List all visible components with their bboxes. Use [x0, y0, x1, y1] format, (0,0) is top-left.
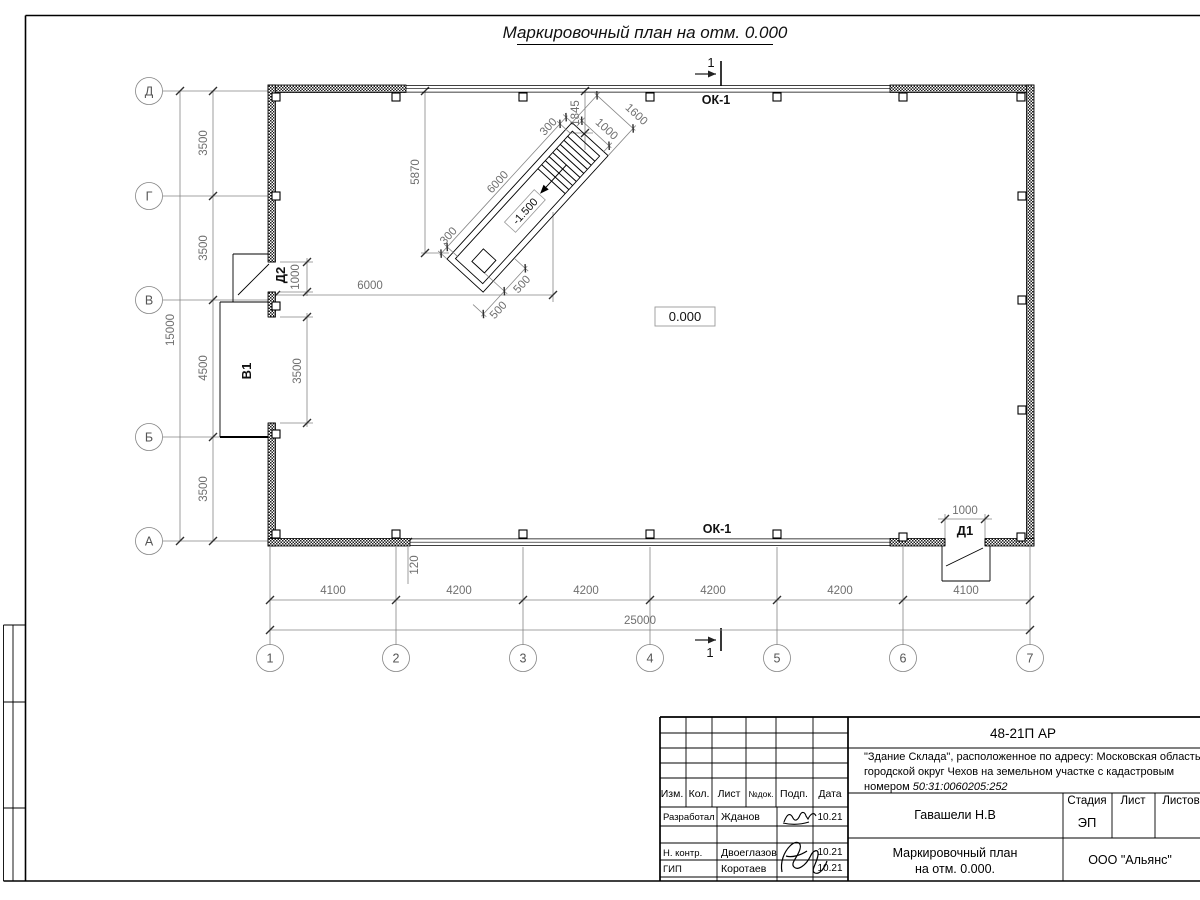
door-d2-porch: [233, 254, 269, 302]
plan-title: Маркировочный план на отм. 0.000: [503, 23, 788, 42]
axis-label: 4: [647, 652, 654, 666]
dim-label: 4200: [700, 585, 726, 597]
door-mark: Д2: [273, 267, 288, 284]
dim-label: 300: [438, 225, 460, 247]
dim-label: 4200: [573, 585, 599, 597]
section-number: 1: [707, 55, 714, 70]
axis-label: Г: [146, 190, 153, 204]
tb-project-line: "Здание Склада", расположенное по адресу…: [864, 751, 1200, 763]
stair-steps: [538, 136, 595, 193]
tb-date: 10.21: [817, 863, 842, 874]
dim-label: 4200: [446, 585, 472, 597]
dim-label: 3500: [292, 358, 304, 384]
axis-bubbles-bottom: 1 2 3 4 5 6 7: [257, 645, 1044, 672]
tb-header-kol: Кол.: [689, 788, 710, 800]
title-block: Изм. Кол. Лист №док. Подп. Дата Разработ…: [660, 717, 1200, 881]
tb-stage-label: Стадия: [1067, 795, 1106, 807]
dim-label: 300: [538, 116, 560, 138]
axis-label: 1: [267, 652, 274, 666]
building: [220, 85, 1034, 581]
dim-label: 4500: [198, 355, 210, 381]
section-number: 1: [706, 645, 713, 660]
wall-segment: [890, 539, 945, 547]
dim-label: 3500: [198, 130, 210, 156]
section-arrow-icon: [708, 637, 716, 644]
dim-label: 15000: [165, 314, 177, 346]
window-mark: ОК-1: [702, 93, 731, 107]
tb-name: Коротаев: [721, 863, 767, 875]
plan-annotations: 0.000 ОК-1 ОК-1 Д1 Д2 В1: [239, 93, 973, 538]
gate-mark: В1: [239, 363, 254, 380]
window-mark: ОК-1: [703, 522, 732, 536]
signature-icon: [783, 812, 816, 824]
axis-label: Б: [145, 431, 153, 445]
dimensions: 3500 3500 4500 3500 15000 4100 4200 4200…: [165, 87, 1034, 634]
window-band-bottom: [410, 539, 890, 546]
section-mark-bottom: 1: [695, 628, 721, 660]
wall-segment: [268, 85, 276, 262]
tb-chief: Гавашели Н.В: [914, 808, 996, 822]
tb-sheet-title: Маркировочный план: [893, 846, 1018, 860]
dim-label: 500: [512, 274, 534, 296]
section-mark-top: 1: [695, 55, 721, 86]
section-arrow-icon: [708, 71, 716, 78]
axis-label: Д: [145, 85, 154, 99]
stair-ramp-pit: 300 6000 300 1000 1600 500 500 -1.500: [419, 69, 667, 327]
column-marks: [272, 93, 1026, 541]
floor-plan-drawing: Маркировочный план на отм. 0.000 1 1: [0, 0, 1200, 900]
tb-name: Двоеглазов: [721, 847, 777, 859]
tb-project-line: городской округ Чехов на земельном участ…: [864, 766, 1174, 778]
dimension-labels: 3500 3500 4500 3500 15000 4100 4200 4200…: [165, 100, 979, 627]
tb-sheets-label: Листов: [1162, 795, 1199, 807]
dim-label: 1000: [593, 117, 620, 143]
dim-label: 1000: [290, 264, 302, 290]
tb-header-izm: Изм.: [661, 788, 684, 800]
dim-label: 4100: [953, 585, 979, 597]
tb-project-line: номером 50:31:0060205:252: [864, 781, 1008, 793]
axis-label: В: [145, 294, 153, 308]
wall-segment: [985, 539, 1034, 547]
tb-doc-number: 48-21П АР: [990, 726, 1056, 741]
door-d1-porch: [942, 546, 990, 581]
dim-label: 500: [488, 299, 510, 321]
tb-date: 10.21: [817, 847, 842, 858]
tb-role: Н. контр.: [663, 848, 702, 859]
wall-segment: [890, 85, 1034, 93]
tb-date: 10.21: [817, 812, 842, 823]
dim-label: 6000: [357, 280, 383, 292]
window-band-top: [406, 85, 890, 92]
tb-role: Разработал: [663, 812, 715, 823]
dim-label: 4100: [320, 585, 346, 597]
dim-label: 3500: [198, 476, 210, 502]
door-mark: Д1: [957, 523, 974, 538]
tb-header-data: Дата: [818, 788, 841, 800]
tb-header-podp: Подп.: [780, 788, 808, 800]
axis-bubbles-left: Д Г В Б А: [136, 78, 163, 555]
tb-stage-value: ЭП: [1078, 815, 1097, 830]
left-stamp-column: [4, 625, 26, 881]
axis-label: 6: [900, 652, 907, 666]
wall-segment: [268, 539, 410, 547]
axis-label: 5: [774, 652, 781, 666]
tb-header-ndoc: №док.: [749, 789, 774, 799]
tb-sheet-title: на отм. 0.000.: [915, 862, 995, 876]
dim-label: 1600: [623, 102, 650, 128]
tb-company: ООО "Альянс": [1088, 853, 1172, 867]
wall-segment: [268, 423, 276, 546]
landing-platform: [472, 249, 496, 273]
dim-label: 3500: [198, 235, 210, 261]
dim-label: 1000: [952, 505, 978, 517]
dim-label: 4200: [827, 585, 853, 597]
dim-label: 25000: [624, 615, 656, 627]
axis-label: А: [145, 535, 154, 549]
wall-segment: [268, 85, 406, 93]
tb-name: Жданов: [721, 811, 760, 823]
axis-label: 2: [393, 652, 400, 666]
dim-label: 5870: [410, 159, 422, 185]
wall-segment: [1027, 85, 1035, 546]
axis-label: 3: [520, 652, 527, 666]
tb-header-list: Лист: [718, 788, 741, 800]
tb-role: ГИП: [663, 864, 682, 875]
axis-label: 7: [1027, 652, 1034, 666]
dim-label: 120: [409, 555, 421, 574]
tb-sheet-label: Лист: [1121, 795, 1147, 807]
drawing-title: Маркировочный план на отм. 0.000: [503, 23, 788, 45]
level-mark: 0.000: [669, 309, 702, 324]
